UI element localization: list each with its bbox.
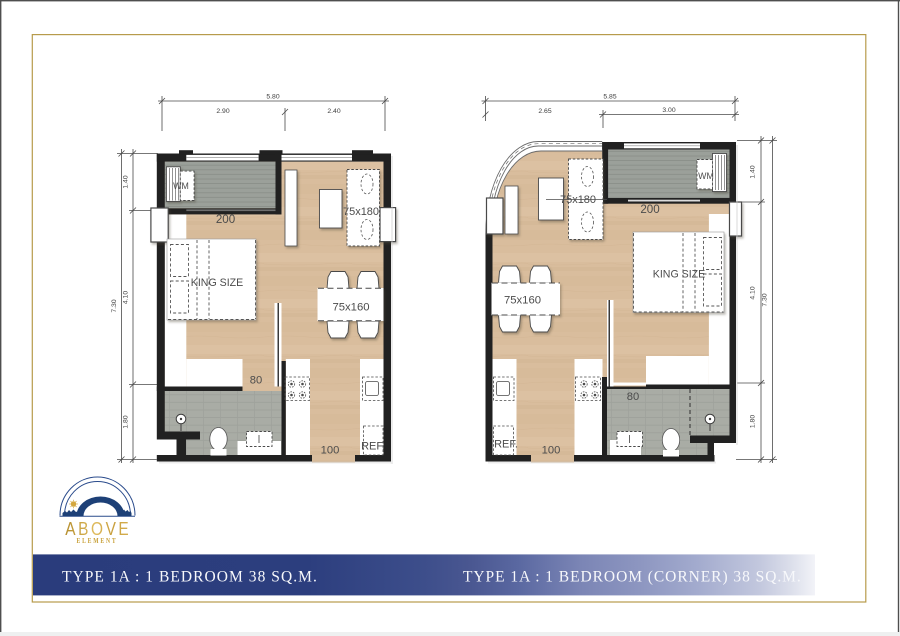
svg-text:REF.: REF.	[361, 441, 385, 453]
svg-text:2.90: 2.90	[216, 108, 229, 115]
svg-text:TYPE 1A : 1 BEDROOM (CORNER) 3: TYPE 1A : 1 BEDROOM (CORNER) 38 SQ.M.	[463, 569, 802, 586]
svg-text:2.65: 2.65	[538, 108, 551, 115]
svg-text:75x160: 75x160	[332, 302, 369, 314]
svg-text:4.10: 4.10	[123, 291, 130, 304]
svg-text:TYPE 1A : 1 BEDROOM 38 SQ.M.: TYPE 1A : 1 BEDROOM 38 SQ.M.	[62, 569, 318, 586]
svg-text:80: 80	[627, 391, 639, 403]
svg-text:1.80: 1.80	[123, 415, 130, 428]
svg-text:7.30: 7.30	[762, 293, 769, 306]
svg-text:WM: WM	[698, 171, 714, 181]
svg-text:1.40: 1.40	[750, 165, 757, 178]
svg-text:75x180: 75x180	[343, 206, 379, 218]
svg-text:7.30: 7.30	[111, 299, 118, 312]
svg-text:1.80: 1.80	[750, 415, 757, 428]
svg-text:75x160: 75x160	[504, 295, 541, 307]
svg-text:2.40: 2.40	[327, 108, 340, 115]
svg-text:5.80: 5.80	[266, 94, 279, 101]
svg-text:100: 100	[542, 445, 561, 457]
svg-text:WM: WM	[173, 181, 189, 191]
svg-text:200: 200	[640, 203, 659, 216]
svg-text:ELEMENT: ELEMENT	[77, 537, 118, 545]
svg-text:3.00: 3.00	[662, 107, 675, 114]
svg-text:100: 100	[321, 445, 340, 457]
svg-text:1.40: 1.40	[123, 175, 130, 188]
svg-text:5.85: 5.85	[603, 94, 616, 101]
svg-text:KING SIZE: KING SIZE	[653, 269, 705, 281]
svg-text:75x180: 75x180	[560, 194, 596, 206]
svg-text:80: 80	[250, 375, 262, 387]
svg-text:4.10: 4.10	[750, 286, 757, 299]
svg-text:KING SIZE: KING SIZE	[191, 277, 243, 289]
svg-text:REF.: REF.	[494, 439, 518, 451]
svg-text:200: 200	[216, 213, 235, 226]
